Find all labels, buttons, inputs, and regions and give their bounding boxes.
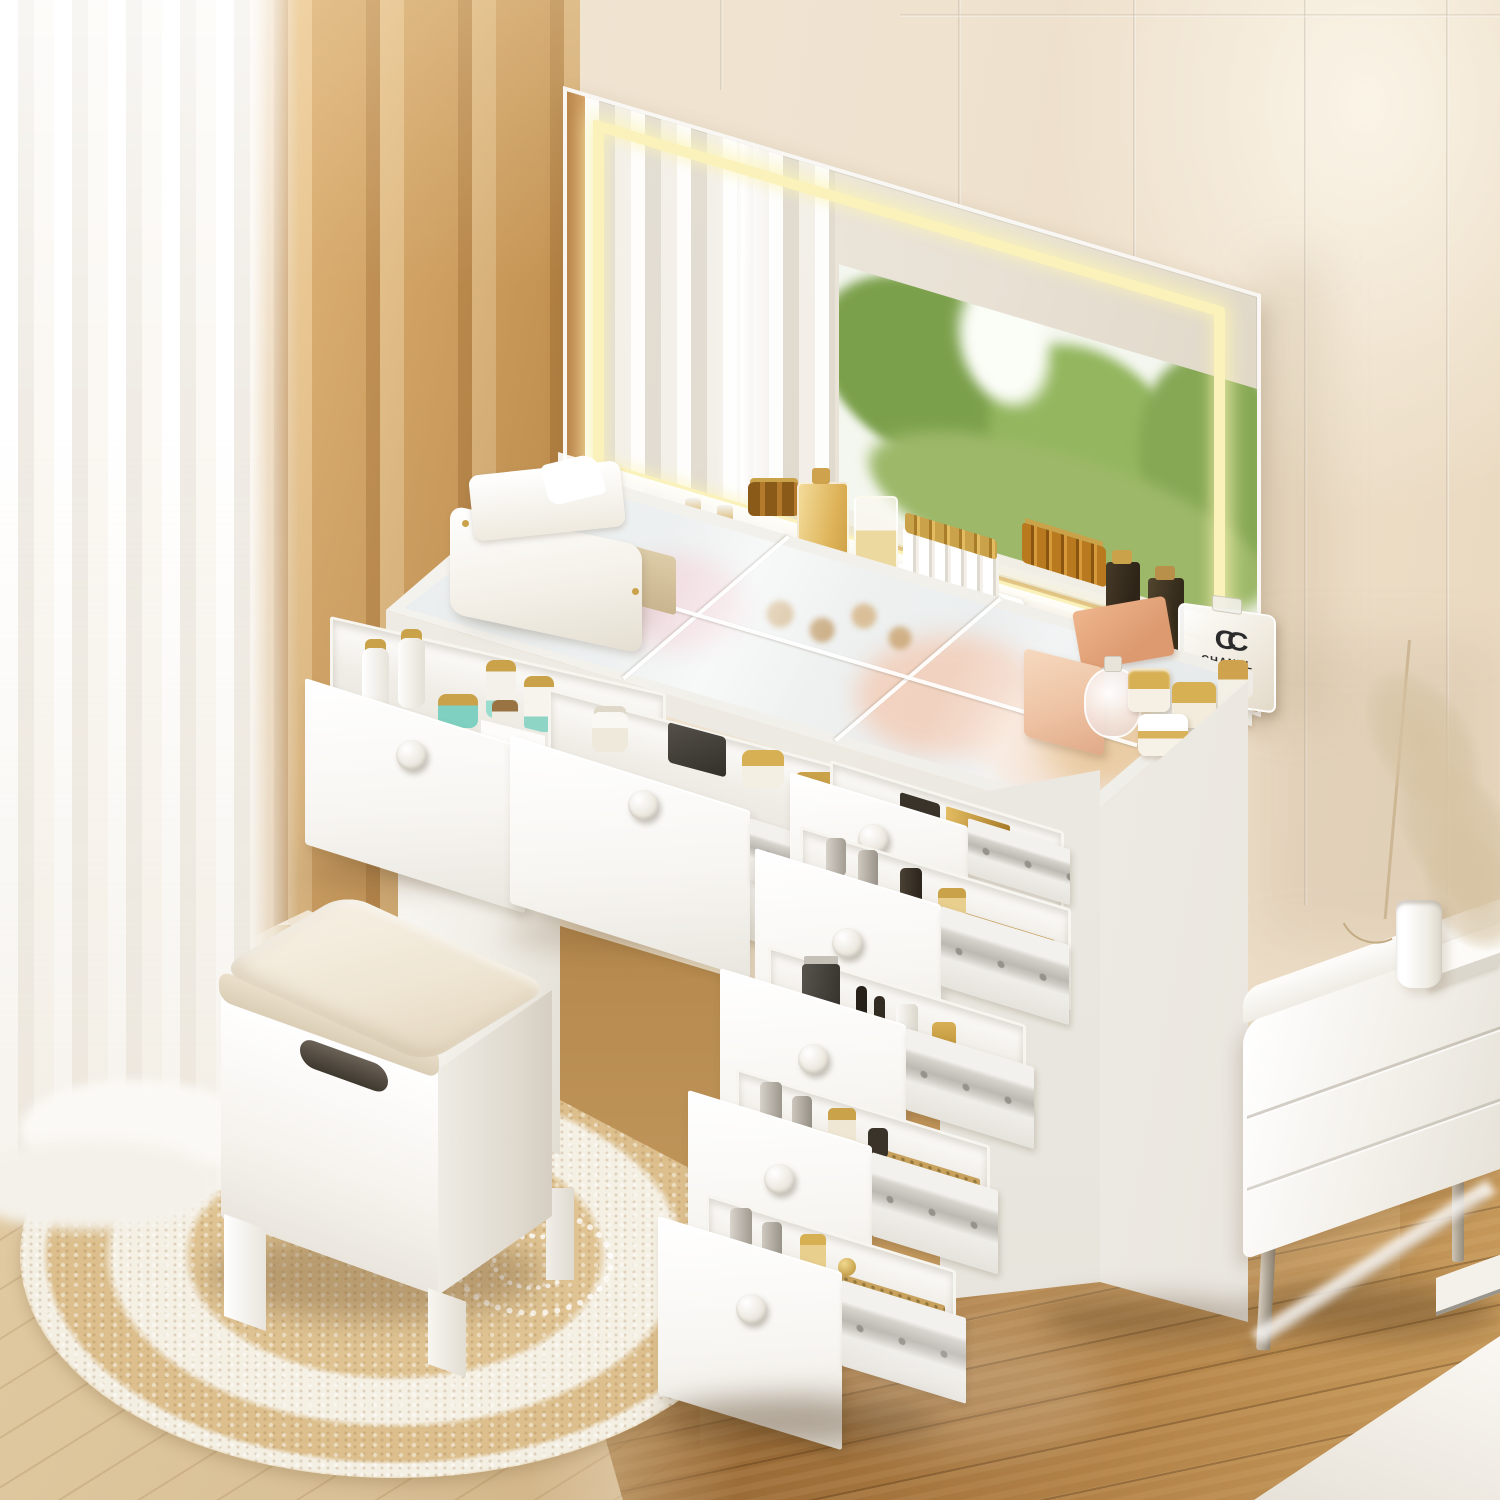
middle-tray-gold-jar-1 [742, 750, 784, 788]
tissue-snap-1 [462, 520, 469, 527]
chanel-bottle-cap [1212, 595, 1242, 615]
round-perfume-cap [1104, 656, 1122, 672]
wall-groove-horizontal [900, 14, 1500, 17]
middle-tray-jar-1 [592, 712, 628, 752]
mirror-reflection-tan-curtain [567, 91, 585, 511]
gold-perfume-cap [812, 468, 830, 484]
cabinet-floor-shadow [1040, 1298, 1260, 1340]
middle-drawer-knob [628, 790, 658, 820]
drawer5-knob [736, 1294, 766, 1324]
bedroom-vanity-photo: CC CHANEL [0, 0, 1500, 1500]
vase [1396, 900, 1442, 988]
stool-leg-front-left [224, 1214, 266, 1331]
drawer4-knob [764, 1164, 794, 1194]
floor-reflection-white [830, 1340, 1110, 1450]
drawer2-knob [832, 928, 862, 958]
dark-perfume-2-cap [1155, 566, 1175, 580]
amber-mini-bottles [748, 482, 800, 516]
tissue-snap-2 [632, 588, 639, 595]
left-drawer-knob [396, 740, 426, 770]
stool-leg-front-right [428, 1288, 466, 1378]
dark-perfume-1-cap [1112, 550, 1132, 564]
wall-groove-1 [720, 0, 723, 90]
left-tray-bottle-2 [398, 638, 425, 708]
drawer3-knob [798, 1044, 828, 1074]
gold-lid-jar-1 [1128, 668, 1170, 712]
